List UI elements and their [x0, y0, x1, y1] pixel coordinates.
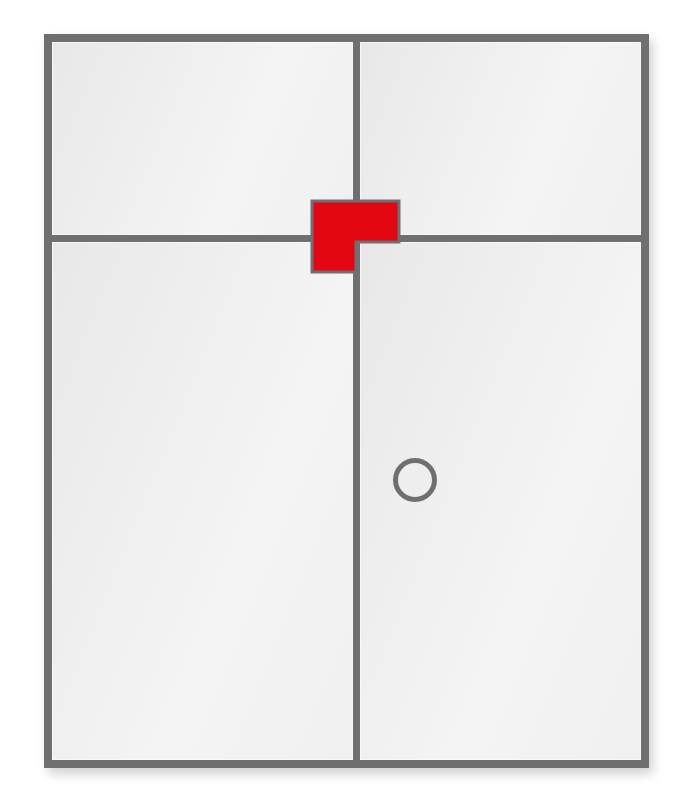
transom-panel-left: [52, 42, 353, 235]
corner-selection-marker-shape[interactable]: [312, 201, 399, 272]
corner-selection-marker-icon[interactable]: [310, 199, 402, 275]
door-knob-icon: [393, 458, 437, 502]
door-leaf-left: [52, 242, 353, 760]
door-leaf-right: [360, 242, 641, 760]
transom-panel-right: [360, 42, 641, 235]
double-door-diagram: [44, 34, 649, 768]
